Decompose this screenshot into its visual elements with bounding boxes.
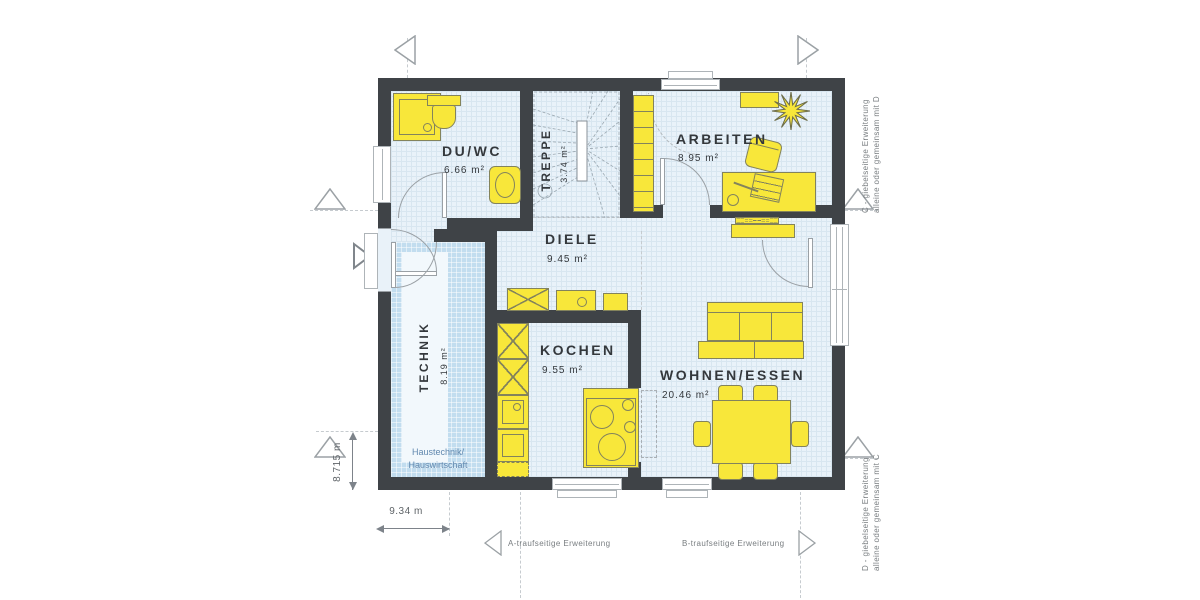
room-label-kochen: KOCHEN (540, 342, 616, 358)
extension-label-d: D - giebelseitige Erweiterung alleine od… (860, 421, 884, 571)
dining-chair (753, 462, 778, 480)
extension-label-a: A-traufseitige Erweiterung (508, 538, 610, 549)
arrowhead-up (349, 432, 357, 440)
dining-chair (718, 462, 743, 480)
extension-label-d-line2: alleine oder gemeinsam mit C (871, 421, 882, 571)
extension-label-d-line1: D - giebelseitige Erweiterung (860, 421, 871, 571)
partition-wall (628, 310, 641, 388)
technik-note-line1: Haustechnik/ (391, 446, 485, 459)
dimension-depth-label: 8.715 m (332, 427, 346, 497)
terrace-door-window-right (830, 224, 849, 346)
floor-plan-canvas: DU/WC 6.66 m² TREPPE 3.74 m² ARBEITEN 8.… (0, 0, 1200, 600)
extension-marker-top-right-icon (797, 35, 819, 65)
hall-sideboard (603, 293, 628, 311)
kitchen-island (583, 388, 639, 468)
dining-table (712, 400, 791, 464)
dimension-width-line (378, 528, 449, 529)
room-label-arbeiten: ARBEITEN (676, 131, 768, 147)
arrowhead-right (442, 525, 450, 533)
extension-label-c: C - giebelseitige Erweiterung alleine od… (860, 63, 884, 213)
extension-label-c-line1: C - giebelseitige Erweiterung (860, 63, 871, 213)
technik-note: Haustechnik/ Hauswirtschaft (391, 446, 485, 472)
room-area-kochen: 9.55 m² (542, 365, 583, 376)
kitchen-sink-unit (497, 395, 529, 429)
entrance-step (364, 233, 378, 289)
dimension-width-label: 9.34 m (371, 506, 441, 517)
hall-sideboard (507, 288, 549, 311)
room-area-diele: 9.45 m² (547, 254, 588, 265)
extension-marker-top-left-icon (394, 35, 416, 65)
window-sill (668, 71, 713, 79)
extension-marker-bottom-left-icon (484, 530, 502, 556)
room-label-technik: TECHNIK (417, 287, 435, 427)
window-bottom-kitchen (552, 478, 622, 490)
partition-wall (497, 310, 641, 323)
arrowhead-down (349, 482, 357, 490)
room-label-wohnen: WOHNEN/ESSEN (660, 367, 805, 383)
hall-sideboard (556, 290, 596, 311)
dining-chair (693, 421, 711, 447)
room-area-wohnen: 20.46 m² (662, 390, 709, 401)
window-sill (557, 490, 617, 498)
room-area-treppe: 3.74 m² (559, 124, 571, 204)
plant-icon (772, 92, 810, 130)
arrowhead-left (376, 525, 384, 533)
partition-wall (520, 91, 533, 218)
sofa-chaise (698, 341, 804, 359)
tv-lowboard (731, 224, 795, 238)
gable-marker-left-icon (314, 188, 346, 210)
dining-chair (791, 421, 809, 447)
desk-lamp (727, 194, 739, 206)
extension-label-c-line2: alleine oder gemeinsam mit D (871, 63, 882, 213)
room-label-duwc: DU/WC (442, 143, 502, 159)
extension-marker-bottom-right-icon (798, 530, 816, 556)
kitchen-appliance (497, 429, 529, 462)
kitchen-counter (497, 359, 529, 395)
window-sill (666, 490, 708, 498)
window-left (373, 146, 391, 203)
tv (735, 217, 779, 224)
entrance-opening (378, 228, 391, 292)
partition-wall (434, 229, 497, 242)
room-label-diele: DIELE (545, 231, 599, 247)
kitchen-passage (641, 390, 657, 458)
kitchen-base-cabinet (497, 462, 529, 477)
washbasin (489, 166, 521, 204)
sofa-seat (707, 312, 803, 341)
kitchen-counter (497, 323, 529, 359)
room-area-duwc: 6.66 m² (444, 165, 485, 176)
partition-wall (485, 242, 497, 477)
window-bottom-living (662, 478, 712, 490)
office-shelf (633, 95, 654, 212)
room-label-treppe: TREPPE (539, 100, 555, 220)
room-area-technik: 8.19 m² (439, 326, 451, 406)
technik-note-line2: Hauswirtschaft (391, 459, 485, 472)
room-area-arbeiten: 8.95 m² (678, 153, 719, 164)
guide-line (316, 431, 378, 432)
guide-line (310, 210, 378, 211)
extension-label-b: B-traufseitige Erweiterung (682, 538, 784, 549)
hall-living-open-boundary (641, 231, 642, 310)
toilet-bowl (432, 105, 456, 129)
partition-wall (620, 91, 633, 218)
window-top (661, 79, 720, 90)
